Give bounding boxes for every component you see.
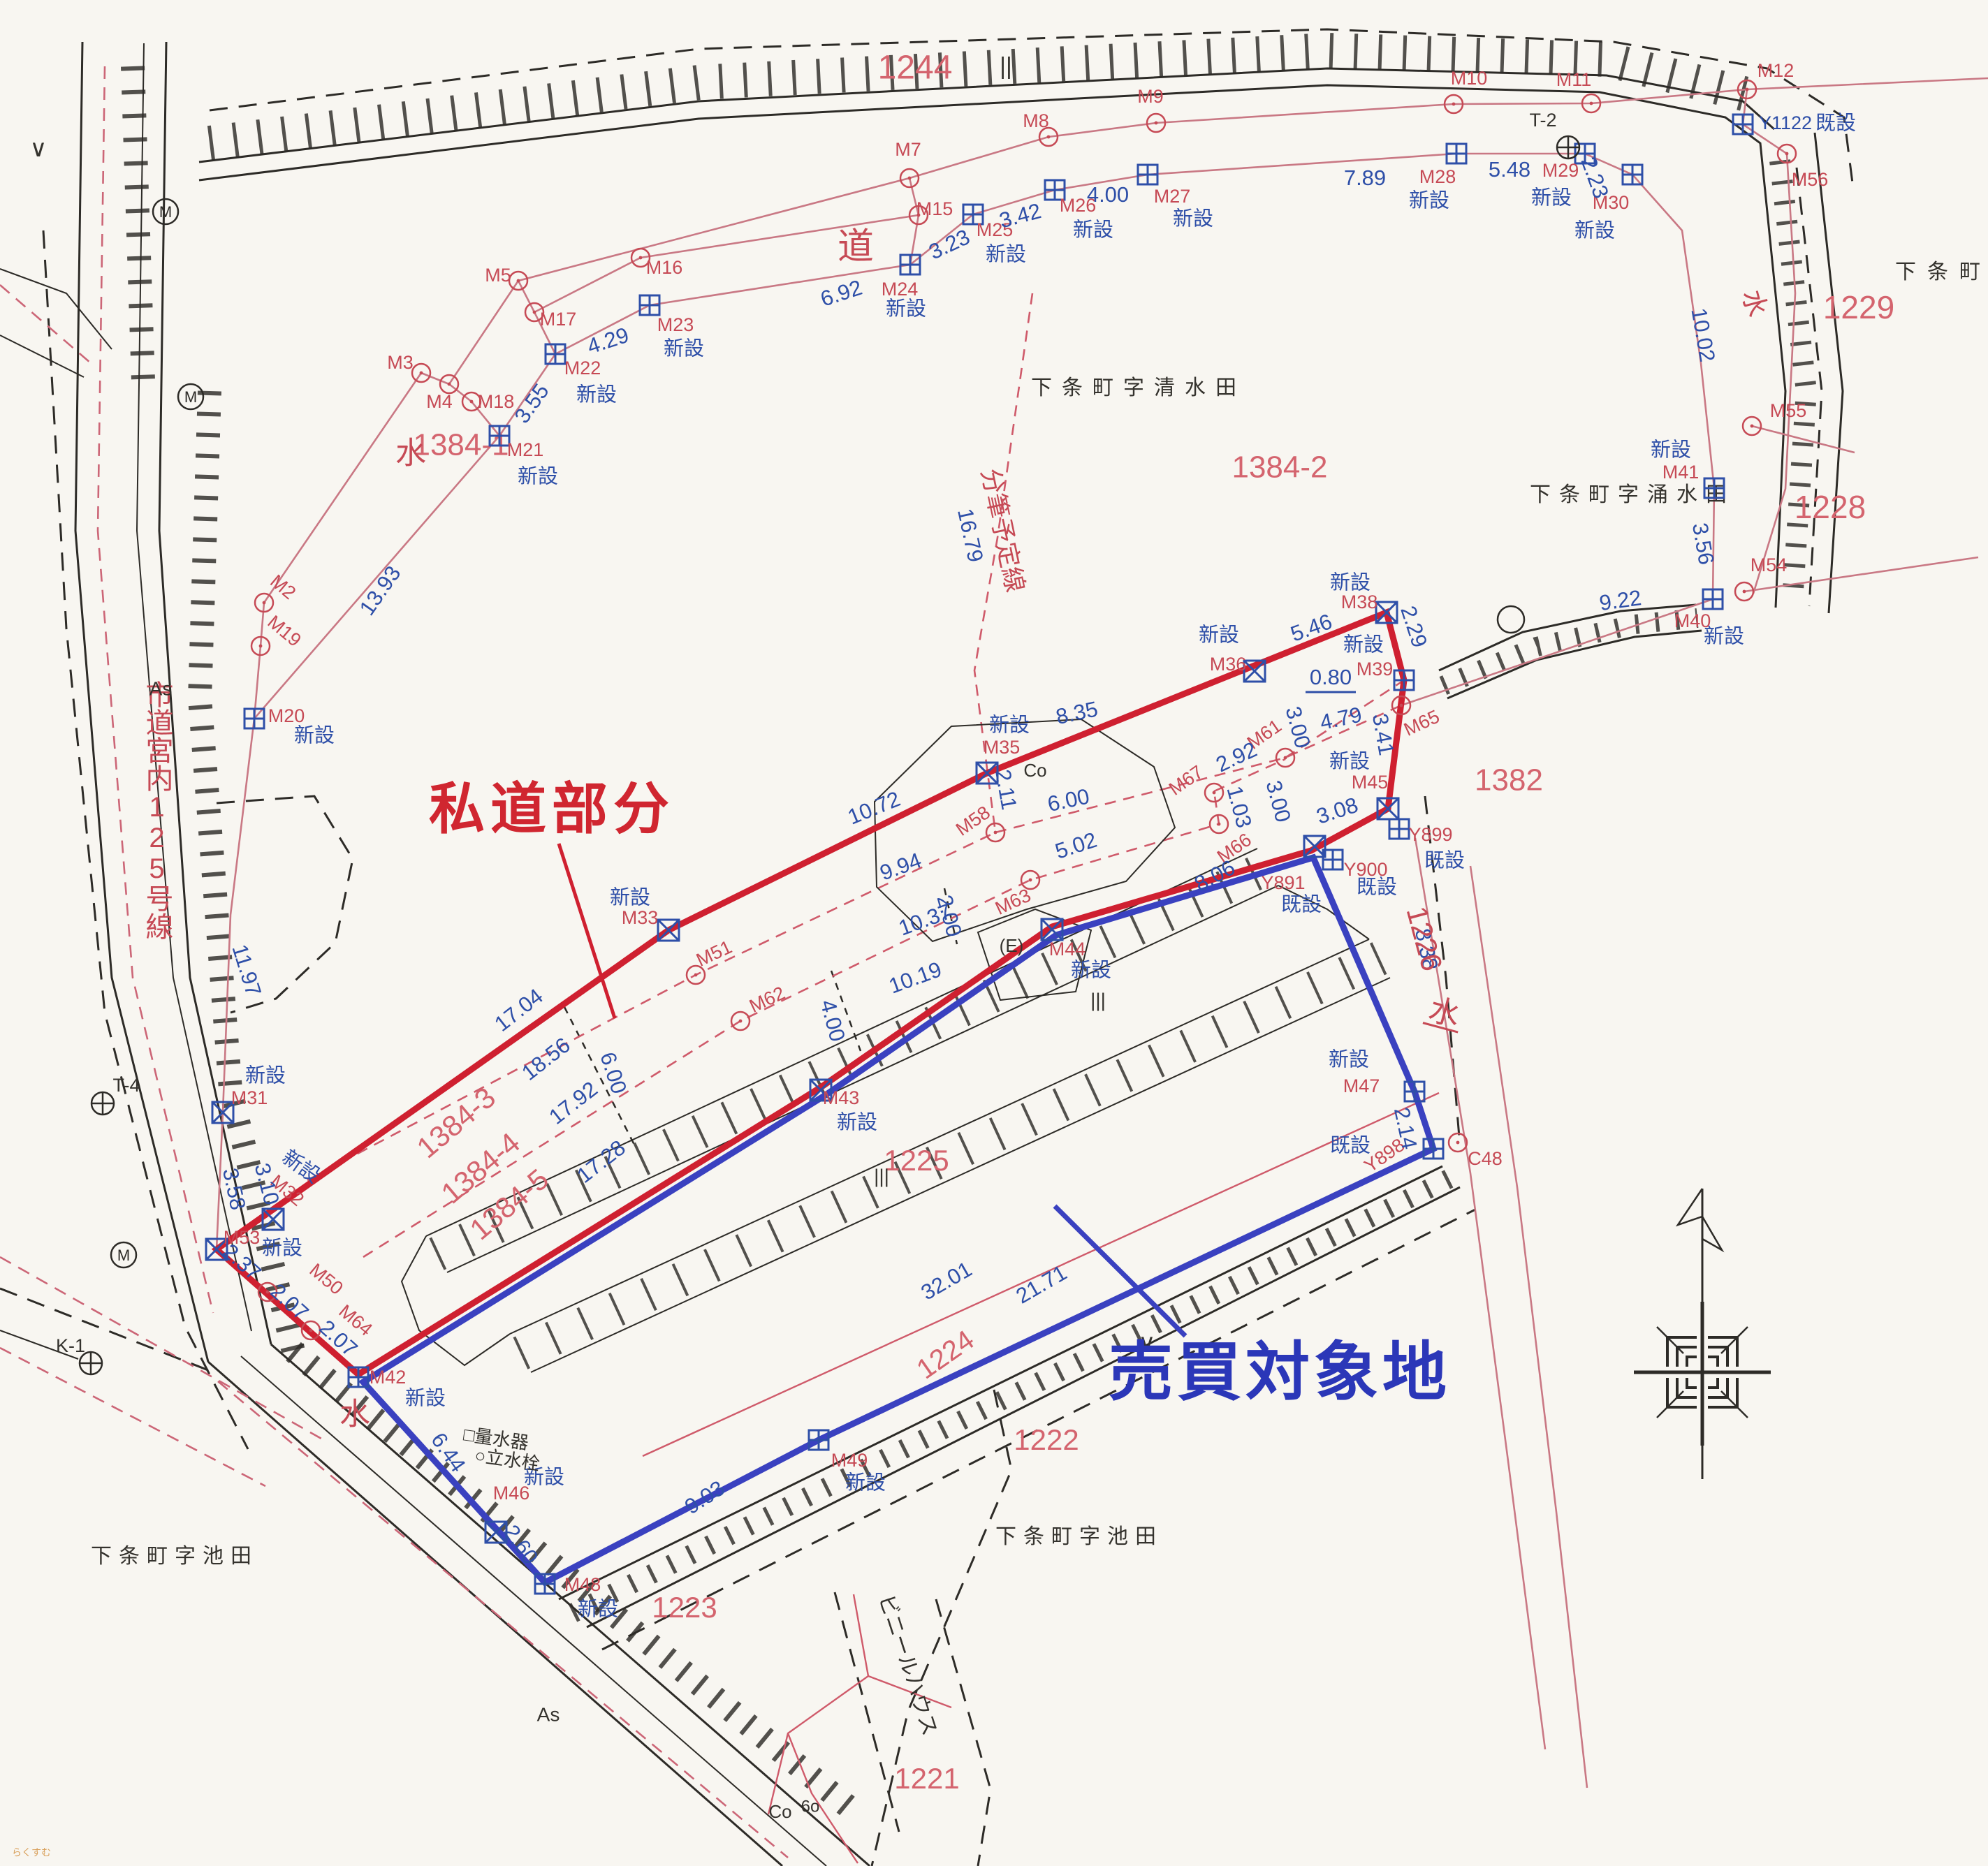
sw-dash (0, 1288, 208, 1370)
misc-label: Co (768, 1801, 791, 1822)
survey-point-label: C48 (1468, 1148, 1503, 1169)
measurement-value: 2.11 (991, 767, 1022, 811)
survey-point-label: M48 (564, 1574, 601, 1595)
measurement-value: 17.92 (544, 1077, 602, 1129)
private-road-leader (559, 844, 615, 1018)
red-1221-line (768, 1594, 868, 1814)
survey-point-label: M38 (1341, 592, 1378, 612)
parcel-number: 1382 (1475, 763, 1543, 798)
measurement-value: 2.23 (1576, 154, 1614, 202)
survey-point-label: M65 (1401, 706, 1442, 740)
measurement-value: 3.41 (1368, 712, 1399, 758)
levee-outer-dash (210, 29, 1852, 183)
survey-symbol-sq-icon (1703, 589, 1723, 609)
survey-point-label: T-4 (112, 1075, 140, 1096)
measurement-value: 10.02 (1686, 306, 1720, 363)
survey-symbol-dot-icon (1735, 582, 1753, 601)
misc-label: Co (1023, 760, 1046, 781)
sale-area-label: 売買対象地 (1109, 1337, 1451, 1408)
misc-label: 水 (1425, 992, 1463, 1034)
survey-symbol-dot-icon (1743, 417, 1761, 435)
measurement-value: 17.04 (490, 984, 548, 1036)
survey-point-label: M12 (1757, 60, 1795, 81)
survey-symbol-mcirc-icon (178, 384, 203, 409)
measurement-value: 4.00 (816, 997, 850, 1044)
vinyl-house-dash-e (936, 1599, 991, 1866)
survey-point-status: 新設 (837, 1111, 877, 1134)
measurement-value: 17.28 (572, 1136, 630, 1188)
misc-label: (E) (1000, 935, 1024, 956)
survey-point-label: M5 (485, 265, 511, 286)
survey-symbol-dot-icon (1205, 784, 1223, 802)
measurement-value: 9.94 (877, 848, 925, 886)
survey-point-label: M11 (1556, 69, 1592, 90)
misc-label: ||| (1090, 989, 1106, 1011)
measurement-value: 3.00 (1281, 704, 1315, 751)
bldg-band2-s (531, 978, 1390, 1372)
measurement-value: 9.22 (1598, 585, 1643, 615)
survey-point-label: K-1 (56, 1335, 85, 1356)
survey-point-status: 既設 (1815, 112, 1856, 135)
measurement-value: 7.89 (1344, 166, 1386, 190)
measurement-value: 6.92 (817, 275, 865, 311)
survey-point-status: 新設 (1574, 219, 1615, 242)
strip-divider-2 (363, 791, 1219, 1257)
place-name: 下条町字清水田 (1031, 376, 1246, 399)
survey-point-status: 新設 (294, 724, 335, 747)
compass-diag (1657, 1327, 1683, 1353)
compass-bracket (1687, 1378, 1697, 1388)
measurement-value: 3.08 (1313, 793, 1361, 829)
misc-label: As (537, 1703, 560, 1725)
measurement-value: 2.29 (1396, 603, 1432, 650)
survey-symbol-dot-icon (1276, 749, 1294, 767)
survey-point-status: 新設 (1199, 624, 1239, 647)
survey-point-label: M22 (564, 358, 601, 379)
pink-m4-m5 (449, 281, 518, 384)
survey-point-status: 新設 (986, 243, 1026, 266)
survey-point-label: M39 (1357, 659, 1394, 679)
measurement-value: 4.29 (584, 323, 631, 359)
hatching (133, 50, 1806, 1816)
survey-point-label: M15 (916, 198, 953, 219)
survey-point-status: 既設 (1330, 1134, 1371, 1157)
survey-point-label: M17 (540, 309, 577, 330)
measurement-value: 16.79 (953, 506, 988, 564)
measurement-value: 9.03 (680, 1476, 729, 1519)
survey-symbol-dot-icon (900, 169, 919, 187)
misc-label: || (1000, 53, 1012, 80)
survey-symbol-dot-icon (412, 364, 430, 382)
measurement-value: 6.00 (595, 1049, 631, 1096)
survey-symbol-sq-icon (546, 344, 565, 364)
compass-bracket (1708, 1378, 1718, 1388)
pink-1226-channel-w (1415, 838, 1545, 1749)
survey-point-label: M27 (1154, 186, 1191, 207)
survey-point-status: 新設 (576, 383, 617, 406)
measurement-value: 4.79 (1317, 702, 1364, 735)
survey-symbol-dot-icon (1210, 815, 1228, 833)
survey-point-label: M18 (478, 391, 515, 412)
pink-1226-channel-e (1470, 866, 1587, 1788)
measurement-value: 5.02 (1052, 828, 1099, 864)
survey-point-status: 新設 (664, 337, 704, 360)
misc-label: 6o (801, 1797, 820, 1816)
misc-label: 水 (339, 1397, 370, 1432)
west-road-edge2 (159, 42, 271, 1344)
survey-point-label: M7 (895, 139, 921, 160)
survey-symbol-sq-icon (1389, 819, 1409, 839)
survey-symbol-dot-icon (1449, 1133, 1467, 1152)
survey-point-label: M31 (231, 1087, 268, 1108)
survey-point-label: Y891 (1261, 872, 1305, 893)
misc-label: 市道宮内125号線 (141, 680, 173, 940)
measurement-value: 3.23 (925, 224, 973, 264)
parcel-number: 1221 (894, 1762, 959, 1795)
parcel-number: 1229 (1823, 289, 1894, 325)
survey-point-label: M16 (646, 257, 683, 278)
survey-symbol-mcirc-icon (153, 199, 178, 224)
measurement-value: 3.55 (509, 379, 553, 428)
survey-point-label: M43 (823, 1087, 860, 1108)
survey-point-label: M45 (1352, 772, 1389, 793)
measurement-value: 21.71 (1012, 1260, 1072, 1308)
survey-point-label: M50 (305, 1259, 347, 1299)
misc-label: ∨ (30, 135, 47, 162)
pink-sw-dash2 (0, 1348, 265, 1486)
survey-point-status: 新設 (886, 297, 926, 321)
survey-point-label: M62 (746, 983, 788, 1017)
place-name: 下条町字池田 (995, 1525, 1163, 1548)
measurement-value: 11.97 (227, 941, 265, 999)
parcel-number: 1224 (912, 1324, 980, 1385)
measurement-value: 10.19 (886, 957, 945, 998)
pink-m7-m24 (909, 178, 919, 265)
survey-point-label: M49 (831, 1450, 868, 1471)
survey-point-status: 既設 (1281, 893, 1322, 916)
survey-point-label: M23 (657, 314, 694, 335)
survey-point-label: M42 (370, 1367, 407, 1388)
measurement-value: 8.35 (1053, 696, 1099, 729)
measurement-value: 3.58 (218, 1166, 251, 1212)
survey-point-status: 新設 (405, 1387, 446, 1410)
compass-bracket (1687, 1357, 1697, 1367)
survey-point-status: 新設 (1409, 189, 1449, 212)
survey-point-status: 新設 (262, 1237, 302, 1260)
survey-point-label: M9 (1137, 86, 1164, 107)
misc-label: As (149, 677, 173, 699)
survey-point-label: M58 (952, 802, 994, 840)
survey-point-status: 新設 (245, 1064, 286, 1087)
measurement-value: 18.56 (517, 1033, 575, 1085)
survey-point-status: 新設 (1330, 571, 1371, 594)
parcel-number: 1225 (884, 1144, 949, 1177)
private-road-label: 私道部分 (429, 778, 675, 840)
survey-symbol-plus-icon (92, 1092, 114, 1115)
survey-points: M2M19M20新設M21新設M22新設M23新設M24新設M25新設M26新設… (56, 60, 1856, 1621)
misc-label: 1226 (1400, 903, 1449, 974)
survey-point-status: 新設 (989, 714, 1030, 737)
nw-fork2 (0, 335, 84, 377)
survey-symbol-plus-icon (1557, 136, 1579, 159)
misc-label: 分筆予定線 (976, 466, 1030, 595)
survey-point-label: M20 (268, 705, 305, 726)
survey-point-label: M35 (984, 737, 1021, 758)
survey-point-status: 既設 (1357, 876, 1397, 899)
survey-symbol-sq-icon (1447, 144, 1466, 163)
south-road-inner (241, 1356, 826, 1866)
survey-symbol-mcirc-icon (111, 1242, 136, 1268)
survey-point-status: 新設 (1651, 439, 1691, 462)
parcel-number: 1228 (1795, 489, 1866, 525)
pink-west-chain (217, 603, 264, 1249)
misc-label: ||| (874, 1165, 889, 1187)
channel-center-dash (1797, 168, 1822, 606)
measurement-value: 10.72 (845, 786, 904, 830)
misc-label: ○立水栓 (474, 1445, 541, 1475)
survey-point-status: 新設 (1343, 633, 1384, 656)
survey-point-status: 新設 (1173, 207, 1213, 230)
survey-symbol-sq-icon (900, 255, 920, 274)
survey-symbol-sq-icon (1394, 670, 1414, 690)
compass-diag (1721, 1327, 1748, 1353)
parcel-number: 1223 (652, 1591, 717, 1624)
survey-point-status: 新設 (1329, 750, 1370, 773)
survey-point-label: T-2 (1529, 110, 1556, 131)
pink-m2-m3 (264, 373, 421, 603)
misc-label: 水 (1737, 287, 1771, 321)
place-name: 下条町字池田 (91, 1545, 258, 1568)
survey-point-status: 新設 (1073, 219, 1113, 242)
compass-diag (1721, 1391, 1748, 1418)
survey-point-status: 新設 (1071, 959, 1111, 982)
survey-point-label: M33 (622, 907, 659, 928)
survey-point-status: 新設 (1704, 625, 1744, 648)
misc-labels: 道水水水水1226分筆予定線市道宮内125号線AsAsCoCo6o(E)ビニール… (12, 53, 1771, 1858)
manhole-circle-icon (1498, 606, 1524, 633)
bldg-band1-s (447, 886, 1278, 1272)
nw-fork (0, 269, 112, 349)
survey-point-label: M29 (1542, 160, 1579, 181)
survey-point-label: M24 (882, 279, 919, 300)
survey-point-status: 新設 (578, 1598, 618, 1621)
cadastral-map: M (0, 0, 1988, 1866)
misc-label: らくすむ (12, 1847, 51, 1858)
measurement-value: 2.00 (933, 892, 967, 939)
survey-symbol-sq-icon (1733, 115, 1753, 134)
compass-bracket (1708, 1357, 1718, 1367)
survey-point-status: 新設 (518, 465, 558, 488)
measurement-value: 6.00 (1045, 784, 1091, 816)
parcel-number: 1244 (878, 50, 953, 87)
measurement-value: 3.10 (250, 1161, 284, 1207)
survey-point-label: M44 (1049, 939, 1086, 960)
misc-label: ビニールハウス (874, 1592, 941, 1739)
survey-point-label: M67 (1165, 761, 1207, 800)
survey-point-status: 新設 (1329, 1048, 1369, 1071)
survey-point-label: M4 (426, 391, 453, 412)
measurement-value: 3.42 (997, 198, 1044, 233)
survey-point-status: 既設 (1424, 849, 1465, 872)
survey-point-label: M36 (1210, 654, 1247, 675)
compass-diag (1657, 1391, 1683, 1418)
survey-point-label: Y899 (1408, 824, 1452, 845)
survey-point-label: M28 (1419, 166, 1456, 187)
survey-symbol-dot-icon (509, 272, 527, 290)
survey-point-label: M10 (1451, 68, 1488, 89)
parcel-number: 1222 (1014, 1423, 1079, 1456)
survey-point-label: M55 (1770, 400, 1807, 421)
measurement-value: 5.48 (1489, 157, 1530, 182)
survey-symbol-dot-icon (440, 375, 458, 393)
measurement-value: 13.93 (355, 561, 406, 620)
survey-point-label: M47 (1343, 1075, 1380, 1096)
survey-symbol-sq-icon (1424, 1139, 1443, 1159)
survey-symbol-dot-icon (731, 1012, 750, 1030)
strip-divider-1 (307, 832, 995, 1180)
survey-point-label: M3 (387, 352, 414, 373)
misc-label: 水 (395, 436, 426, 471)
bldg-band2-hatch (520, 958, 1380, 1353)
east-band-edge2 (1447, 631, 1702, 698)
survey-symbol-sq-icon (1405, 1082, 1424, 1101)
survey-symbol-sq-icon (1138, 165, 1157, 184)
measurement-value: 3.00 (1262, 778, 1296, 825)
survey-map-scan: M (0, 0, 1988, 1866)
survey-symbol-sq-icon (640, 295, 659, 315)
measurement-value: 0.80 (1310, 665, 1352, 689)
measurement-value: 32.01 (917, 1256, 977, 1305)
north-compass (1634, 1189, 1771, 1479)
survey-point-label: M21 (507, 439, 544, 460)
survey-point-label: M56 (1792, 169, 1829, 190)
misc-label: 道 (838, 227, 874, 267)
parcel-number: 1384-2 (1231, 450, 1327, 485)
survey-point-label: Y1122 (1759, 112, 1812, 133)
private-road-boundary (217, 612, 1404, 1374)
levee-hatch (210, 50, 1760, 143)
pink-levee-chain (518, 78, 1988, 281)
survey-point-label: M41 (1662, 462, 1700, 483)
survey-point-status: 新設 (1531, 186, 1572, 210)
measurement-value: 4.00 (1087, 182, 1129, 207)
place-name: 下条町 (1895, 260, 1988, 284)
survey-point-label: M8 (1023, 110, 1049, 131)
survey-point-label: M54 (1751, 554, 1788, 575)
survey-point-status: 新設 (610, 886, 650, 909)
survey-symbol-x-icon (658, 920, 679, 941)
compass-pennant (1678, 1189, 1722, 1250)
survey-point-status: 新設 (845, 1471, 886, 1494)
pink-922-line (1401, 599, 1713, 705)
